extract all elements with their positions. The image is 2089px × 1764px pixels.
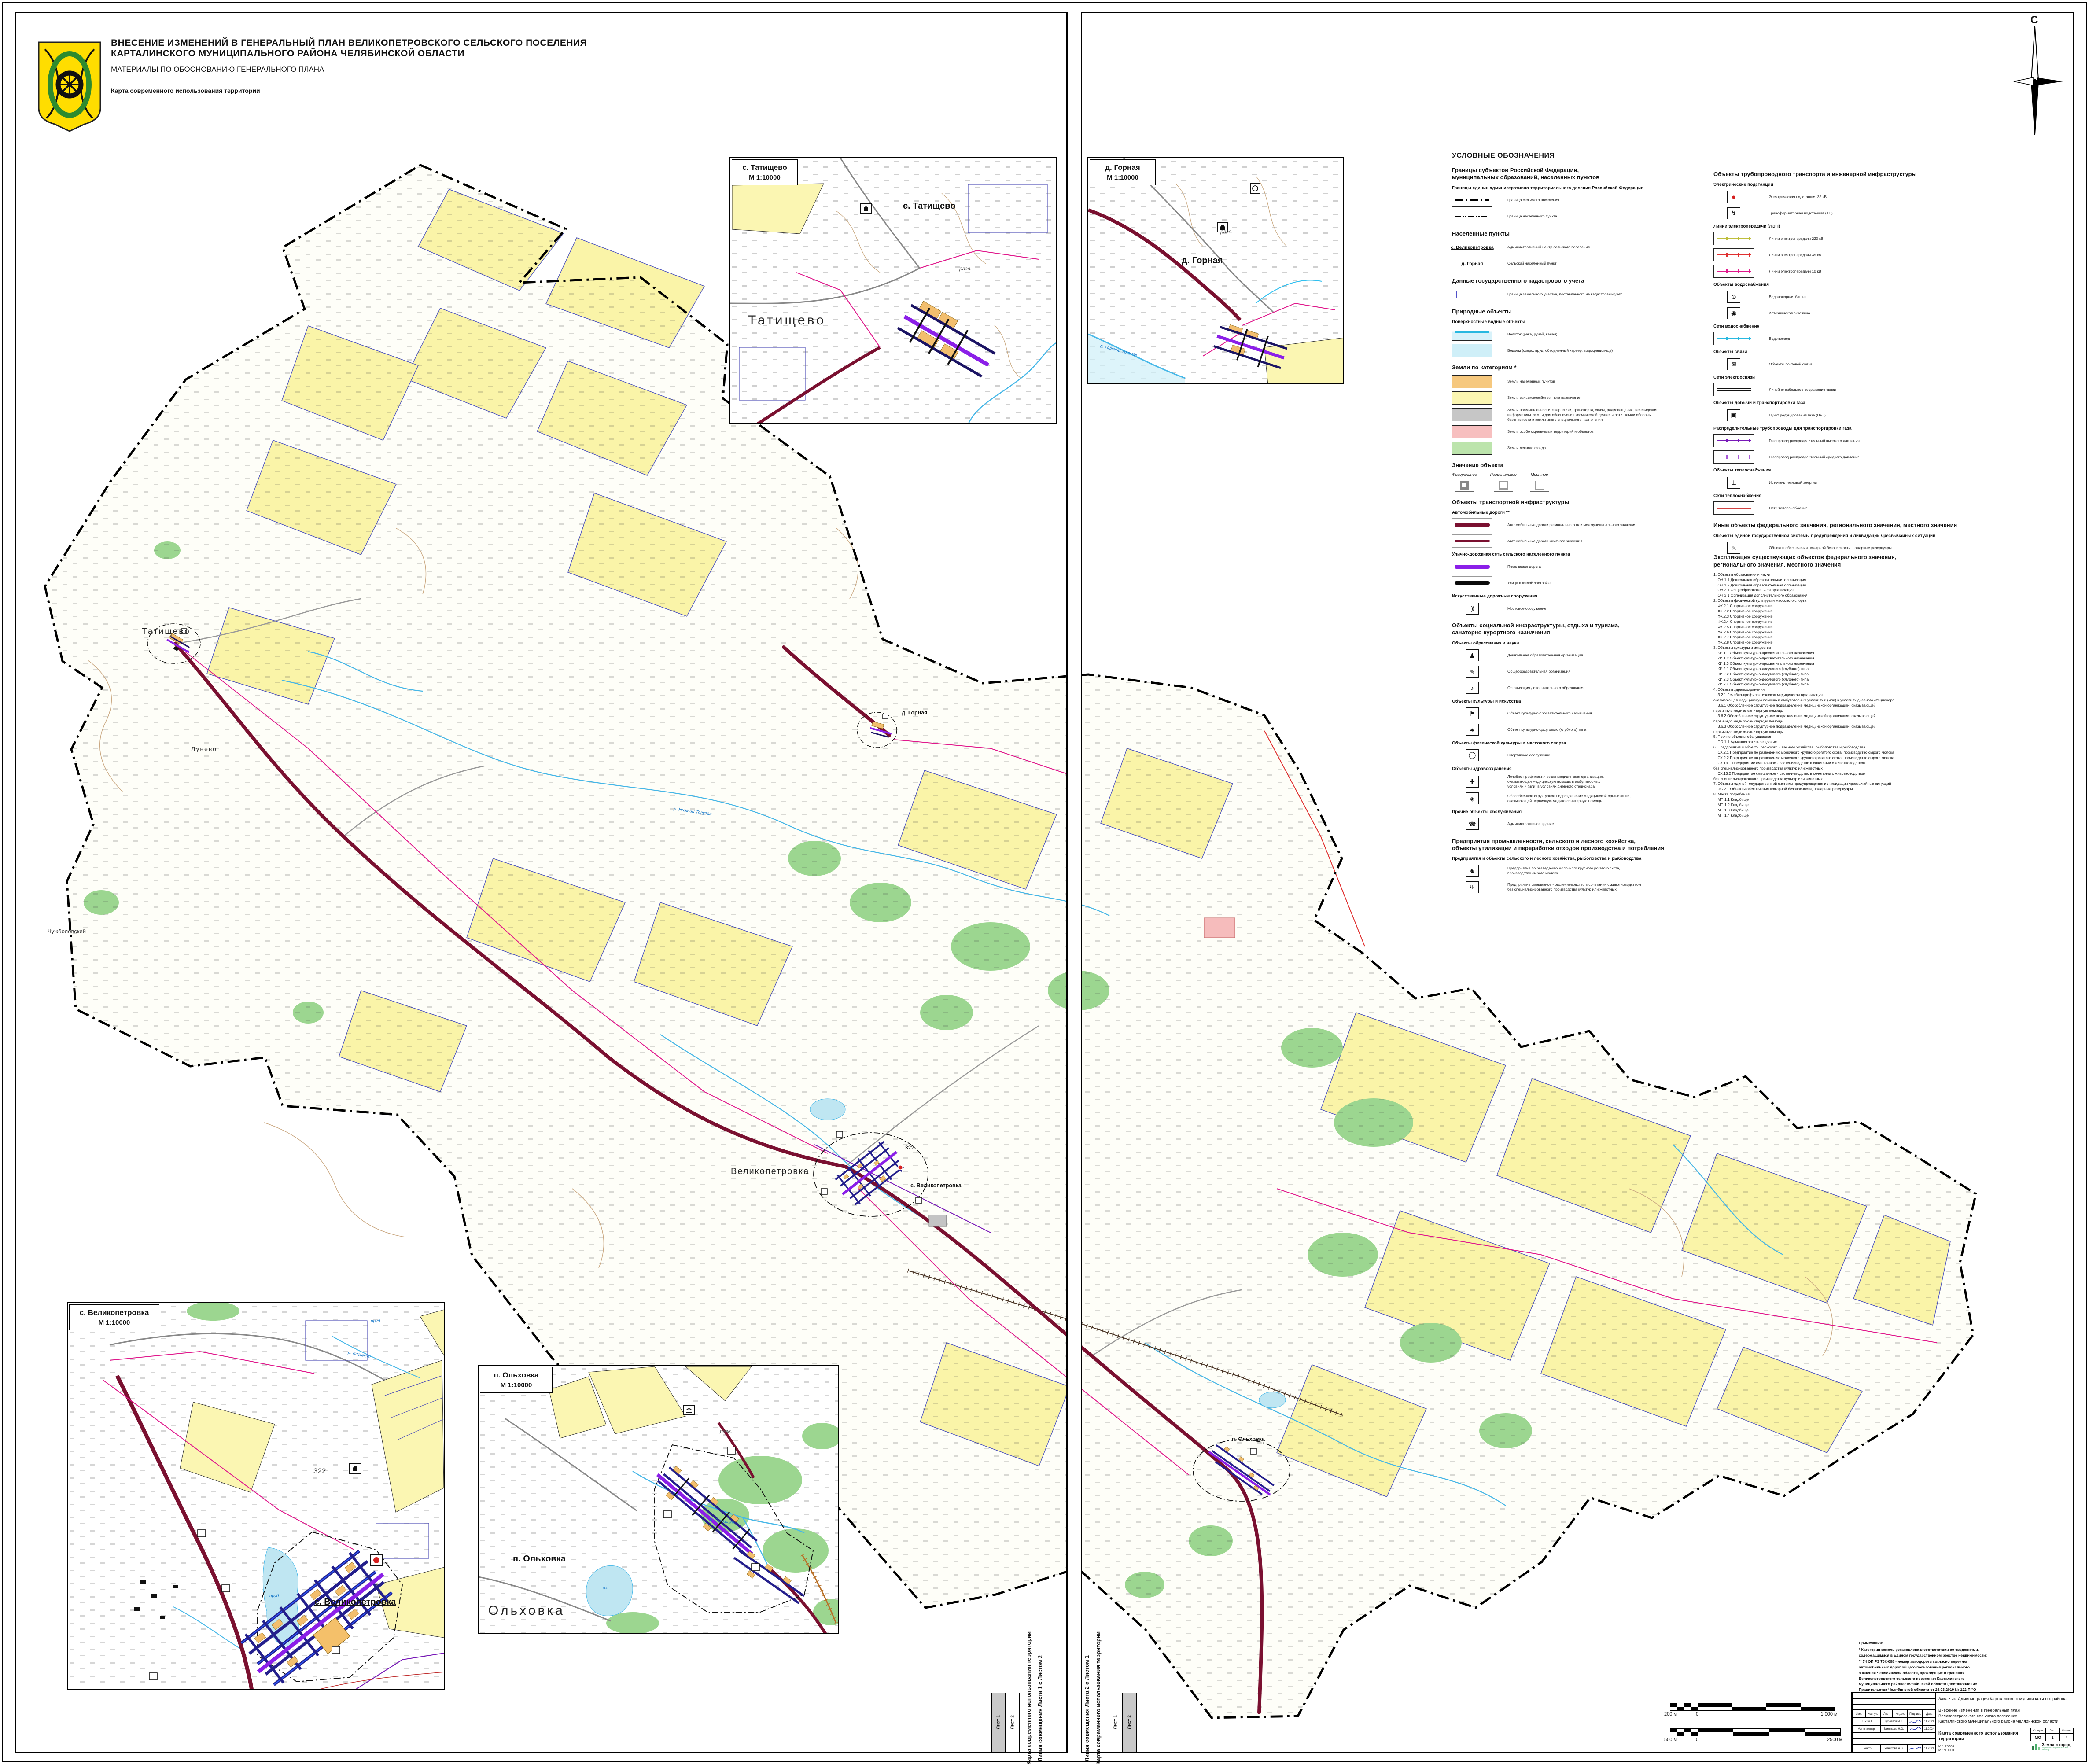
legend-left-column: УСЛОВНЫЕ ОБОЗНАЧЕНИЯ Границы субъектов Р…	[1452, 152, 1704, 897]
legend-item-label: Линии электропередачи 10 кВ	[1769, 269, 1821, 274]
explication-line: ФК.2.8 Спортивное сооружение	[1713, 640, 1978, 645]
legend-item: ☎Административное здание	[1452, 818, 1704, 831]
explication-line: ФК.2.6 Спортивное сооружение	[1713, 630, 1978, 635]
legend-item-label: Водопровод	[1769, 336, 1790, 341]
club-icon: ♣	[1452, 723, 1492, 737]
legend-item: Земли населенных пунктов	[1452, 375, 1704, 388]
significance-label: Региональное	[1490, 472, 1517, 477]
sheet1-cell: Лист 1	[991, 1693, 1006, 1752]
explication-line: ОН.1.1 Дошкольная образовательная органи…	[1713, 578, 1978, 583]
explication-line: 3. Объекты культуры и искусства	[1713, 645, 1978, 651]
org-subname: научно-исследовательский институт	[2042, 1747, 2070, 1752]
legend-item: Граница земельного участка, поставленног…	[1452, 288, 1704, 301]
inset-tatishchevo-map	[730, 158, 1057, 424]
notes-title: Примечания:	[1859, 1640, 1987, 1646]
residential-street-swatch	[1452, 576, 1492, 589]
legend-item: )(Мостовое сооружение	[1452, 602, 1704, 615]
pond	[1259, 1392, 1286, 1408]
legend-item-label: Обособленное структурное подразделение м…	[1507, 794, 1631, 803]
legend-item: ♣Объект культурно-досугового (клубного) …	[1452, 723, 1704, 737]
inset-gornaya-titlebox: д. Горная М 1:10000	[1090, 159, 1156, 185]
legend-heading: Искусственные дорожные сооружения	[1452, 594, 1704, 599]
inset-tatishchevo-titlebox: с. Татищево М 1:10000	[732, 159, 798, 185]
scale-bar-checker	[1670, 1729, 1698, 1736]
legend-item: ✚Лечебно-профилактическая медицинская ор…	[1452, 774, 1704, 789]
row3-name: Умнихова А.В.	[1880, 1744, 1908, 1753]
gas-high-pressure-swatch	[1713, 434, 1754, 447]
sheet2-cell: Лист 2	[1006, 1693, 1020, 1752]
waterbody-swatch	[1452, 344, 1492, 357]
inset-pond-label: пруд	[269, 1594, 279, 1598]
main-label-tatishchevo: Татищево	[142, 627, 191, 637]
watercourse-swatch	[1452, 328, 1492, 341]
explication-line: СХ.13.2 Предприятие смешанное - растение…	[1713, 771, 1978, 777]
bridge-icon: )(	[1452, 602, 1492, 615]
sheets-value: 4	[2060, 1734, 2074, 1741]
legend-item-label: Лечебно-профилактическая медицинская орг…	[1507, 774, 1604, 789]
legend-heading: Объекты водоснабжения	[1713, 282, 1963, 287]
local-road-swatch	[1452, 534, 1492, 548]
sheet2-cell: Лист 2	[1123, 1693, 1137, 1752]
music-note-icon: ♪	[1452, 681, 1492, 695]
inset-ruins-label: разв.	[1220, 228, 1233, 235]
protected-lands-swatch	[1452, 425, 1492, 438]
settlement-lands-swatch	[1452, 375, 1492, 388]
explication: Экспликация существующих объектов федера…	[1713, 554, 1978, 818]
legend-item-label: Трансформаторная подстанция (ТП)	[1769, 211, 1833, 216]
legend-heading: Объекты связи	[1713, 350, 1963, 354]
legend-heading: Населенные пункты	[1452, 230, 1704, 237]
scale-bar-main	[1698, 1729, 1840, 1736]
legend-item-label: Газопровод распределительный среднего да…	[1769, 455, 1860, 460]
explication-line: 8. Места погребения	[1713, 792, 1978, 797]
stadium-icon: ◯	[1452, 749, 1492, 762]
artesian-well-icon: ◉	[1713, 306, 1754, 320]
explication-line: МП.1.4 Кладбище	[1713, 813, 1978, 818]
compass-north-label: С	[2030, 14, 2038, 26]
boundary-locality-swatch	[1452, 210, 1492, 223]
significance-frame	[1530, 479, 1549, 492]
legend-item: Граница населенного пункта	[1452, 210, 1704, 223]
legend-item-label: Линии электропередачи 35 кВ	[1769, 253, 1821, 258]
legend-item-label: Граница земельного участка, поставленног…	[1507, 292, 1622, 297]
scale-bar-checker	[1670, 1703, 1698, 1710]
explication-line: ОН.1.2 Дошкольная образовательная органи…	[1713, 583, 1978, 588]
legend-heading: Объекты добычи и транспортировки газа	[1713, 401, 1963, 405]
inset-velikopetrovka-titlebox: с. Великопетровка М 1:10000	[69, 1304, 159, 1330]
scale-right-label: 1 000 м	[1820, 1712, 1837, 1717]
row3-role: Н. контр.	[1852, 1744, 1880, 1753]
legend-item: Водопровод	[1713, 332, 1963, 345]
cadastral-parcel-swatch	[1452, 288, 1492, 301]
explication-line: первичную медико-санитарную помощь	[1713, 708, 1978, 714]
sheets-label: Листов	[2060, 1728, 2074, 1734]
explication-line: СХ.13.1 Предприятие смешанное - растение…	[1713, 761, 1978, 766]
significance-row: ФедеральноеРегиональноеМестное	[1452, 472, 1704, 492]
explication-line: 7. Объекты единой государственной систем…	[1713, 781, 1978, 787]
main-label-lunevo: Лунево	[191, 745, 217, 752]
row1-name: Курбатов И.В.	[1880, 1718, 1908, 1725]
explication-line: КИ.2.3 Объект культурно-досугового (клуб…	[1713, 677, 1978, 682]
sheet-value: 1	[2045, 1734, 2060, 1741]
admin-center-name: с. Великопетровка	[1452, 241, 1492, 254]
kindergarten-icon: ♟	[1452, 649, 1492, 662]
legend-heading: Значение объекта	[1452, 462, 1704, 469]
inset-title: с. Татищево	[737, 163, 793, 172]
significance-frame	[1494, 479, 1513, 492]
legend-right-column: Объекты трубопроводного транспорта и инж…	[1713, 164, 1963, 583]
explication-line: 6. Предприятия и объекты сельского и лес…	[1713, 745, 1978, 750]
row1-signature	[1908, 1718, 1923, 1725]
scale-bar-10000: 500 м 0 2500 м	[1670, 1728, 1841, 1742]
col-kol: Кол. уч.	[1865, 1710, 1880, 1718]
legend-item-label: Предприятие по разведению молочного круп…	[1507, 866, 1620, 876]
industrial-patch	[929, 1215, 947, 1226]
legend-item-label: Газопровод распределительный высокого да…	[1769, 438, 1860, 443]
legend-item-label: Граница сельского поселения	[1507, 198, 1559, 203]
page-title-line1: ВНЕСЕНИЕ ИЗМЕНЕНИЙ В ГЕНЕРАЛЬНЫЙ ПЛАН ВЕ…	[111, 38, 947, 48]
legend-heading: Электрические подстанции	[1713, 182, 1963, 187]
legend-heading: Сети электросвязи	[1713, 375, 1963, 380]
legend-item: Водоем (озеро, пруд, обводненный карьер,…	[1452, 344, 1704, 357]
legend-item-label: Водоток (река, ручей, канал)	[1507, 332, 1557, 337]
legend-item: ●Электрическая подстанция 35 кВ	[1713, 190, 1963, 203]
inset-olkhovka-titlebox: п. Ольховка М 1:10000	[480, 1367, 553, 1393]
stage-label: Стадия	[2030, 1728, 2045, 1734]
sheet-diagram-right: Лист 1 Лист 2	[1109, 1693, 1137, 1752]
legend-item-label: Мостовое сооружение	[1507, 606, 1546, 611]
scale-right-label: 2500 м	[1827, 1737, 1842, 1742]
inset-village-label: с. Великопетровка	[314, 1597, 396, 1607]
legend-heading: Объекты здравоохранения	[1452, 766, 1704, 771]
legend-item: ◈Обособленное структурное подразделение …	[1452, 792, 1704, 805]
legend-heading: Земли по категориям *	[1452, 364, 1704, 371]
explication-line: З.6.2 Обособленное структурное подраздел…	[1713, 714, 1978, 719]
water-pipe-swatch	[1713, 332, 1754, 345]
inset-ruins-label: разв.	[720, 1428, 732, 1434]
inset-scale: М 1:10000	[1094, 174, 1151, 181]
inset-title: д. Горная	[1094, 163, 1151, 172]
notes-paragraph-1: * Категория земель установлена в соответ…	[1859, 1647, 1987, 1658]
col-doc: № док.	[1893, 1710, 1908, 1718]
stamp-scales: М 1:25000 М 1:10000	[1936, 1745, 2030, 1753]
explication-line: ФК.2.2 Спортивное сооружение	[1713, 609, 1978, 614]
legend-title: УСЛОВНЫЕ ОБОЗНАЧЕНИЯ	[1452, 152, 1704, 160]
col-izm: Изм.	[1852, 1710, 1865, 1718]
legend-heading: Объекты социальной инфраструктуры, отдых…	[1452, 622, 1704, 637]
gas-medium-pressure-swatch	[1713, 450, 1754, 464]
explication-line: ФК.2.4 Спортивное сооружение	[1713, 619, 1978, 625]
legend-item-label: Объекты обеспечения пожарной безопасност…	[1769, 545, 1892, 550]
inset-velikopetrovka-map	[68, 1303, 445, 1690]
telecom-line-swatch	[1713, 383, 1754, 396]
legend-item: Сети теплоснабжения	[1713, 501, 1963, 515]
explication-line: ОН.2.1 Общеобразовательная организация	[1713, 588, 1978, 593]
explication-line: МП.1.2 Кладбище	[1713, 803, 1978, 808]
main-label-olkhovka: п. Ольховка	[1232, 1436, 1265, 1442]
legend-heading: Данные государственного кадастрового уче…	[1452, 277, 1704, 284]
inset-elevation-label: 322	[313, 1467, 326, 1476]
legend-heading: Объекты трубопроводного транспорта и инж…	[1713, 171, 1963, 178]
explication-line: СХ.2.1 Предприятие по разведению молочно…	[1713, 750, 1978, 755]
legend-item: Линейно-кабельное сооружение связи	[1713, 383, 1963, 396]
inset-village-label: с. Татищево	[903, 201, 955, 211]
legend-item-label: Линейно-кабельное сооружение связи	[1769, 387, 1836, 392]
gas-point-icon: ▣	[1713, 409, 1754, 422]
main-label-elevation: 322	[905, 1145, 914, 1151]
explication-line: первичную медико-санитарную помощь	[1713, 729, 1978, 735]
heat-network-swatch	[1713, 501, 1754, 515]
sheet-gap	[1068, 0, 1081, 1764]
legend-item: Водоток (река, ручей, канал)	[1452, 328, 1704, 341]
legend-item: ♪Организация дополнительного образования	[1452, 681, 1704, 695]
legend-item-label: Источник тепловой энергии	[1769, 480, 1817, 485]
mixed-farm-icon: Ψ	[1452, 880, 1492, 894]
join-line-label-sheet1: Линия совмещения Листа 1 с Листом 2	[1037, 1655, 1043, 1762]
legend-item-label: Земли промышленности, энергетики, трансп…	[1507, 408, 1658, 422]
legend-heading: Распределительные трубопроводы для транс…	[1713, 426, 1963, 431]
legend-item-label: Артезианская скважина	[1769, 311, 1810, 316]
pond	[810, 1099, 845, 1120]
school-icon: ✎	[1452, 665, 1492, 678]
boundary-settlement-swatch	[1452, 194, 1492, 207]
legend-item-label: Организация дополнительного образования	[1507, 685, 1584, 690]
legend-item-label: Линии электропередачи 220 кВ	[1769, 236, 1823, 241]
legend-item-label: Пункт редуцирования газа (ПРГ)	[1769, 413, 1826, 418]
doc-title: Карта современного использования террито…	[1936, 1728, 2030, 1745]
inset-scale: М 1:10000	[74, 1319, 155, 1326]
inset-pond-label: пруд	[371, 1319, 380, 1324]
power-line-220kv-swatch	[1713, 232, 1754, 245]
legend-item: ⊥Источник тепловой энергии	[1713, 476, 1963, 489]
significance-frame	[1455, 479, 1474, 492]
join-line-label-sheet2: Линия совмещения Листа 2 с Листом 1	[1084, 1655, 1090, 1762]
explication-line: без специализированного производства кул…	[1713, 766, 1978, 771]
legend-heading: Сети водоснабжения	[1713, 324, 1963, 329]
legend-item: Автомобильные дороги регионального или м…	[1452, 518, 1704, 531]
legend-item: ↯Трансформаторная подстанция (ТП)	[1713, 206, 1963, 220]
legend-item: Газопровод распределительный высокого да…	[1713, 434, 1963, 447]
medical-unit-icon: ◈	[1452, 792, 1492, 805]
project-name: Внесение изменений в генеральный план Ве…	[1936, 1705, 2074, 1728]
explication-line: СХ.2.2 Предприятие по разведению молочно…	[1713, 755, 1978, 761]
explication-line: ФК.2.5 Спортивное сооружение	[1713, 625, 1978, 630]
legend-heading: Поверхностные водные объекты	[1452, 320, 1704, 324]
explication-line: З.6.1 Обособленное структурное подраздел…	[1713, 703, 1978, 708]
sheet-diagram-left: Лист 1 Лист 2	[991, 1693, 1020, 1752]
legend-item-label: Водонапорная башня	[1769, 295, 1806, 299]
inset-velikopetrovka: с. Великопетровка М 1:10000 322 с. Велик…	[67, 1302, 445, 1690]
legend-heading: Предприятия и объекты сельского и лесног…	[1452, 856, 1704, 861]
legend-item-label: Автомобильные дороги местного значения	[1507, 539, 1582, 544]
legend-item-label: Электрическая подстанция 35 кВ	[1769, 195, 1827, 199]
inset-olkhovka: п. Ольховка М 1:10000 п. Ольховка Ольхов…	[478, 1365, 839, 1634]
explication-line: МП.1.1 Кладбище	[1713, 797, 1978, 803]
legend-item-label: Спортивное сооружение	[1507, 753, 1550, 758]
legend-item-label: Земли сельскохозяйственного назначения	[1507, 395, 1581, 400]
explication-line: З.2.1 Лечебно-профилактическая медицинск…	[1713, 692, 1978, 698]
org-logo: Земля и город научно-исследовательский и…	[2030, 1741, 2074, 1753]
legend-item: Автомобильные дороги местного значения	[1452, 534, 1704, 548]
scale-bar-main	[1698, 1703, 1835, 1710]
legend-item: Земли сельскохозяйственного назначения	[1452, 391, 1704, 405]
explication-line: ФК.2.7 Спортивное сооружение	[1713, 635, 1978, 640]
inset-village-label: д. Горная	[1182, 256, 1223, 266]
inset-big-label: Татищево	[748, 313, 826, 328]
explication-line: без специализированного производства кул…	[1713, 777, 1978, 782]
inset-ruins-label: разв.	[959, 265, 972, 272]
agricultural-lands-swatch	[1452, 391, 1492, 405]
settlement-road-swatch	[1452, 560, 1492, 573]
inset-gornaya: д. Горная М 1:10000 д. Горная разв. р. Н…	[1087, 157, 1344, 384]
explication-line: оказывающая медицинскую помощь в амбулат…	[1713, 698, 1978, 703]
legend-heading: Улично-дорожная сеть сельского населенно…	[1452, 552, 1704, 557]
legend-heading: Объекты теплоснабжения	[1713, 468, 1963, 473]
legend-item: Земли промышленности, энергетики, трансп…	[1452, 408, 1704, 422]
culture-icon: ⚑	[1452, 707, 1492, 720]
coat-of-arms	[36, 41, 103, 133]
substation-35kv-icon: ●	[1713, 190, 1754, 203]
legend-item-label: Сельский населенный пункт	[1507, 261, 1556, 266]
explication-line: 4. Объекты здравоохранения	[1713, 687, 1978, 692]
legend-heading: Сети теплоснабжения	[1713, 493, 1963, 498]
legend-item: ⚑Объект культурно-просветительного назна…	[1452, 707, 1704, 720]
legend-heading: Границы субъектов Российской Федерации, …	[1452, 167, 1704, 181]
legend-heading: Природные объекты	[1452, 308, 1704, 315]
explication-line: КИ.2.4 Объект культурно-досугового (клуб…	[1713, 682, 1978, 687]
col-date: Дата	[1923, 1710, 1936, 1718]
main-label-velikopetrovka: Великопетровка	[731, 1167, 809, 1177]
legend-item-label: Автомобильные дороги регионального или м…	[1507, 523, 1636, 527]
power-line-10kv-swatch	[1713, 265, 1754, 278]
customer: Заказчик: Администрация Карталинского му…	[1936, 1693, 2074, 1705]
protected-area-patch	[1204, 918, 1235, 938]
legend-item: д. ГорнаяСельский населенный пункт	[1452, 257, 1704, 270]
explication-line: КИ.1.3 Объект культурно-просветительного…	[1713, 661, 1978, 667]
row2-name: Милякова Н.О.	[1880, 1725, 1908, 1733]
inset-scale: М 1:10000	[737, 174, 793, 181]
legend-item-label: Объект культурно-досугового (клубного) т…	[1507, 727, 1586, 732]
legend-item-label: Земли населенных пунктов	[1507, 379, 1555, 384]
org-name: Земля и город	[2042, 1742, 2070, 1747]
col-sign: Подпись	[1908, 1710, 1923, 1718]
explication-line: КИ.2.1 Объект культурно-досугового (клуб…	[1713, 667, 1978, 672]
legend-item-label: Объекты почтовой связи	[1769, 362, 1812, 367]
heat-source-icon: ⊥	[1713, 476, 1754, 489]
significance-sg-f: Федеральное	[1452, 472, 1477, 492]
rural-locality-name: д. Горная	[1452, 257, 1492, 270]
legend-item: Земли особо охраняемых территорий и объе…	[1452, 425, 1704, 438]
substation-marker	[898, 1165, 903, 1170]
legend-item: Улица в жилой застройке	[1452, 576, 1704, 589]
legend-item: Линии электропередачи 35 кВ	[1713, 248, 1963, 261]
significance-sg-m: Местное	[1530, 472, 1549, 492]
row3-date: 11.2024	[1923, 1744, 1936, 1753]
industrial-lands-swatch	[1452, 408, 1492, 421]
legend-item: ♞Предприятие по разведению молочного кру…	[1452, 864, 1704, 877]
explication-line: МП.1.3 Кладбище	[1713, 808, 1978, 813]
map-sheet-name: Карта современного использования террито…	[111, 87, 947, 94]
page-title-line2: КАРТАЛИНСКОГО МУНИЦИПАЛЬНОГО РАЙОНА ЧЕЛЯ…	[111, 48, 947, 59]
inset-tatishchevo: с. Татищево М 1:10000 Татищево с. Татище…	[729, 157, 1057, 424]
legend-item-label: Поселковая дорога	[1507, 564, 1541, 569]
legend-heading: Прочие объекты обслуживания	[1452, 810, 1704, 814]
row1-role: НПУ №1	[1852, 1718, 1880, 1725]
scale-zero-label: 0	[1696, 1712, 1698, 1717]
explication-line: КИ.1.2 Объект культурно-просветительного…	[1713, 656, 1978, 661]
scale-zero-label: 0	[1696, 1737, 1698, 1742]
explication-line: ФК.2.1 Спортивное сооружение	[1713, 604, 1978, 609]
legend-heading: Линии электропередачи (ЛЭП)	[1713, 224, 1963, 229]
row2-signature	[1908, 1725, 1923, 1733]
inset-village-label: п. Ольховка	[513, 1554, 566, 1564]
legend-heading: Объекты образования и науки	[1452, 641, 1704, 646]
scale-bar-25000: 200 м 0 1 000 м	[1670, 1703, 1835, 1717]
legend-item: ♨Объекты обеспечения пожарной безопаснос…	[1713, 541, 1963, 555]
inset-big-label: Ольховка	[488, 1603, 565, 1618]
main-label-gornaya: д. Горная	[902, 710, 927, 716]
legend-item: Газопровод распределительный среднего да…	[1713, 450, 1963, 464]
inset-title: п. Ольховка	[485, 1371, 548, 1380]
legend-item: ◉Артезианская скважина	[1713, 306, 1963, 320]
col-list: Лист	[1880, 1710, 1893, 1718]
power-line-35kv-swatch	[1713, 248, 1754, 261]
inset-scale: М 1:10000	[485, 1381, 548, 1389]
legend-item-label: Предприятие смешанное - растениеводство …	[1507, 882, 1641, 892]
phone-icon: ☎	[1452, 818, 1492, 831]
explication-line: ЧС.2.1 Объекты обеспечения пожарной безо…	[1713, 787, 1978, 792]
main-label-s-velikopetrovka: с. Великопетровка	[910, 1182, 962, 1189]
explication-line: 5. Прочие объекты обслуживания	[1713, 734, 1978, 740]
transformer-icon: ↯	[1713, 206, 1754, 220]
legend-heading: Границы единиц административно-территори…	[1452, 186, 1704, 191]
row3-signature	[1908, 1744, 1923, 1753]
fire-safety-icon: ♨	[1713, 541, 1754, 555]
explication-line: З.6.3 Обособленное структурное подраздел…	[1713, 724, 1978, 729]
header-titles: ВНЕСЕНИЕ ИЗМЕНЕНИЙ В ГЕНЕРАЛЬНЫЙ ПЛАН ВЕ…	[111, 38, 947, 94]
legend-heading: Предприятия промышленности, сельского и …	[1452, 838, 1704, 852]
forest-lands-swatch	[1452, 442, 1492, 455]
map-sheet-page: ВНЕСЕНИЕ ИЗМЕНЕНИЙ В ГЕНЕРАЛЬНЫЙ ПЛАН ВЕ…	[0, 0, 2089, 1764]
explication-line: ПО.1.1 Административное здание	[1713, 740, 1978, 745]
legend-item: Поселковая дорога	[1452, 560, 1704, 573]
inset-olkhovka-map	[479, 1366, 839, 1634]
legend-item-label: Дошкольная образовательная организация	[1507, 653, 1583, 658]
row1-date: 11.2024	[1923, 1718, 1936, 1725]
legend-heading: Иные объекты федерального значения, реги…	[1713, 522, 1963, 529]
medical-cross-icon: ✚	[1452, 775, 1492, 788]
scale-left-label: 200 м	[1664, 1712, 1677, 1717]
legend-item: ✎Общеобразовательная организация	[1452, 665, 1704, 678]
legend-item: ▣Пункт редуцирования газа (ПРГ)	[1713, 409, 1963, 422]
legend-heading: Объекты физической культуры и массового …	[1452, 741, 1704, 746]
legend-heading: Объекты культуры и искусства	[1452, 699, 1704, 704]
significance-label: Федеральное	[1452, 472, 1477, 477]
legend-item: ♟Дошкольная образовательная организация	[1452, 649, 1704, 662]
explication-line: 2. Объекты физической культуры и массово…	[1713, 598, 1978, 604]
explication-line: КИ.2.2 Объект культурно-досугового (клуб…	[1713, 672, 1978, 677]
legend-item: ✉Объекты почтовой связи	[1713, 357, 1963, 371]
sheet-label: Лист	[2045, 1728, 2060, 1734]
compass-rose-icon	[2013, 26, 2064, 136]
legend-item-label: Водоем (озеро, пруд, обводненный карьер,…	[1507, 348, 1613, 353]
legend-item-label: Улица в жилой застройке	[1507, 581, 1551, 586]
join-map-label-sheet1: Карта современного использования террито…	[1026, 1631, 1032, 1764]
legend-item: с. ВеликопетровкаАдминистративный центр …	[1452, 241, 1704, 254]
explication-line: КИ.1.1 Объект культурно-просветительного…	[1713, 651, 1978, 656]
legend-heading: Объекты транспортной инфраструктуры	[1452, 499, 1704, 506]
row2-role: Мл. инженер	[1852, 1725, 1880, 1733]
